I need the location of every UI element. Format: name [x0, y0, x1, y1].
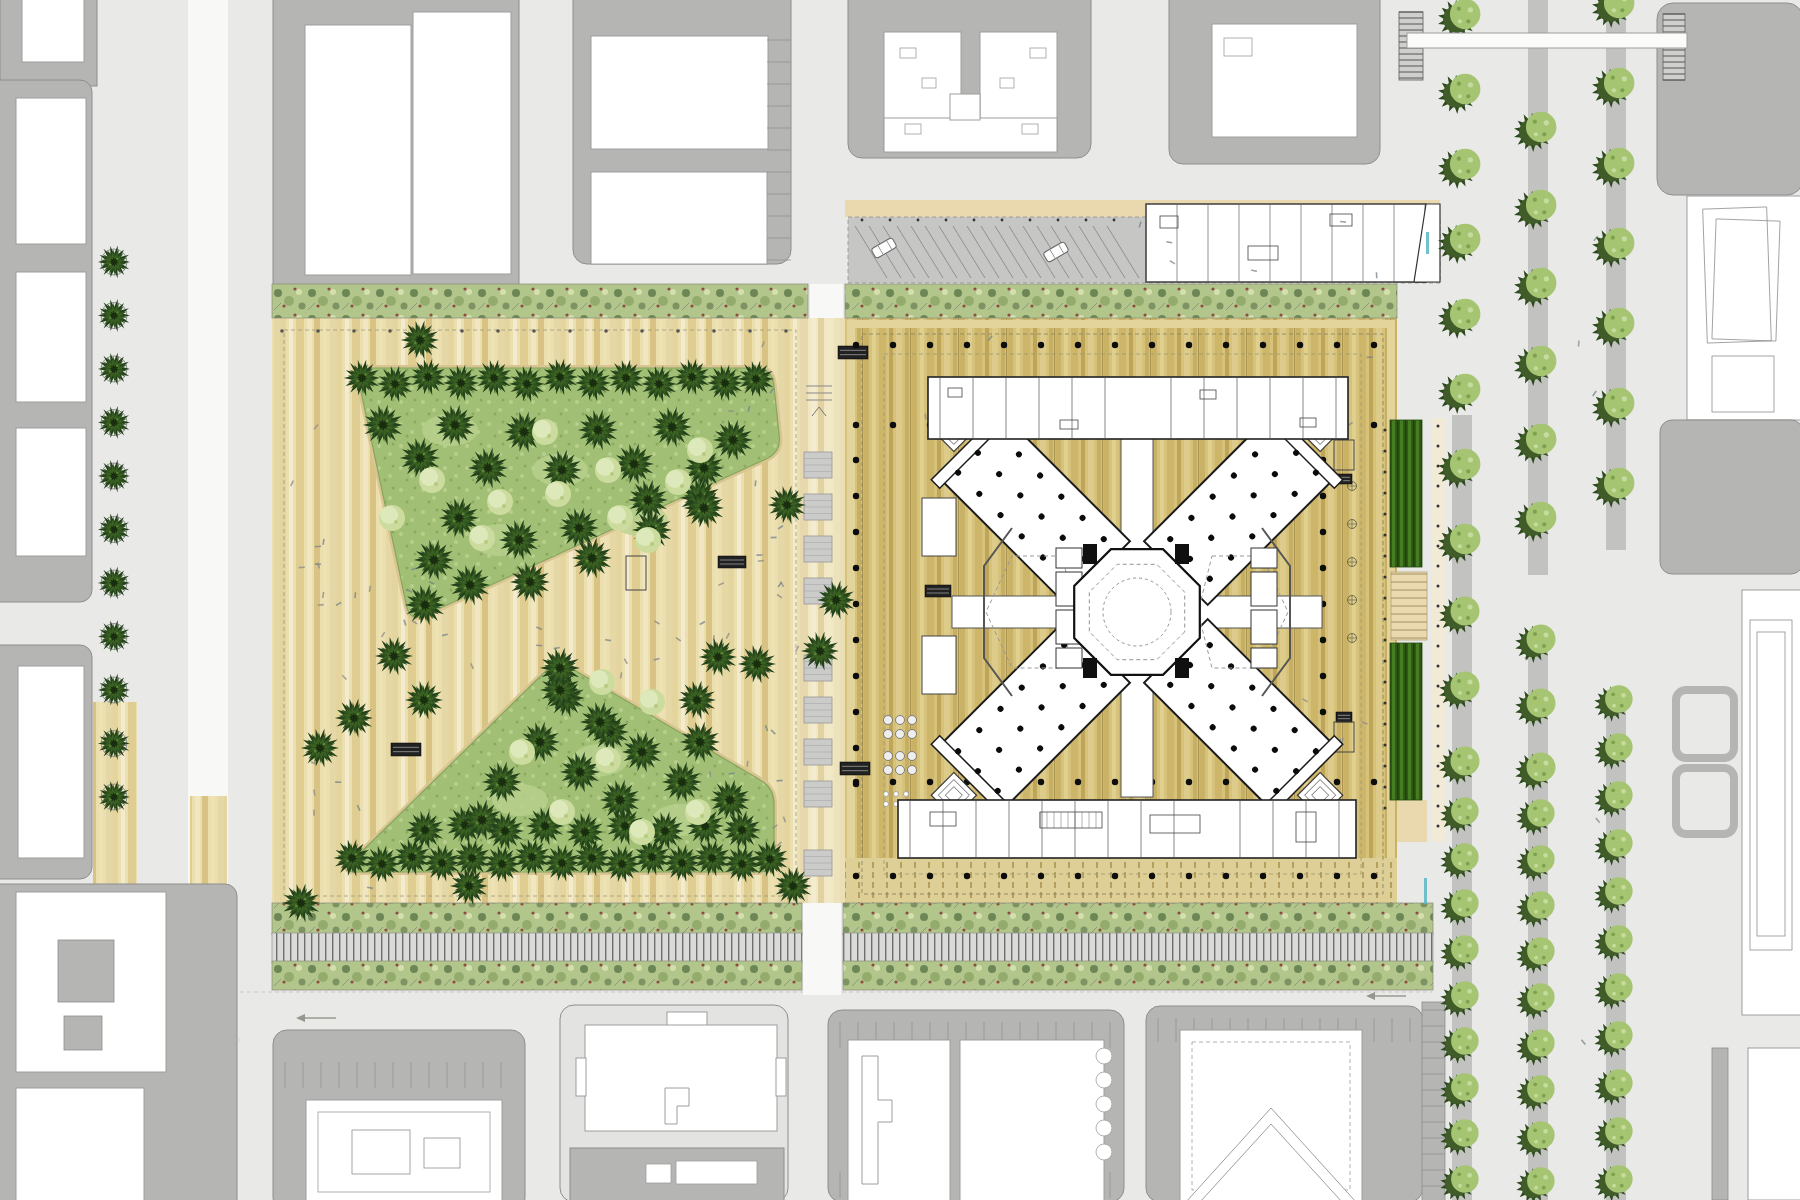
- city-blocks-item: [1000, 78, 1014, 88]
- south-hedge-west-upper: [272, 903, 802, 935]
- block-right-mid: [1660, 420, 1800, 574]
- east-planted-terrace-2: [1390, 643, 1422, 800]
- building-footprint: [591, 36, 768, 149]
- north-hedge-east: [845, 284, 1397, 318]
- city-blocks-item: [576, 1058, 586, 1096]
- building-footprint: [22, 0, 84, 62]
- survey-annotation: [1424, 878, 1427, 904]
- plaza-site-item: [845, 858, 1397, 904]
- bench: [391, 743, 421, 756]
- city-blocks-item: [1712, 1048, 1728, 1200]
- city-blocks-item: [16, 98, 86, 244]
- city-blocks-item: [18, 666, 84, 858]
- city-blocks-item: [64, 1016, 102, 1050]
- plaza-site-item: [853, 873, 1377, 879]
- x-shaped-museum: [906, 381, 1368, 843]
- south-hedge-west-lower: [272, 961, 802, 990]
- city-blocks-item: [922, 78, 936, 88]
- south-hedge-east-lower: [843, 961, 1433, 990]
- city-blocks-item: [16, 428, 86, 556]
- hedge-gap-walk: [810, 284, 843, 318]
- city-blocks-item: [900, 48, 916, 58]
- south-hedge-east-upper: [843, 903, 1433, 935]
- building-right-strip: [1687, 196, 1800, 420]
- city-blocks-item: [58, 940, 114, 1002]
- south-pergola-east: [843, 933, 1433, 963]
- cafe-tables: [884, 716, 917, 725]
- bench: [838, 346, 868, 359]
- south-gap-walk: [803, 903, 841, 995]
- city-blocks-item: [1030, 48, 1046, 58]
- building-footprint: [305, 25, 411, 275]
- building-footprint: [591, 172, 767, 264]
- plaza-site-item: [884, 752, 917, 761]
- bench: [925, 585, 951, 597]
- plaza-site-item: [884, 766, 917, 775]
- city-blocks-item: [905, 124, 921, 134]
- building-footprint: [413, 12, 511, 274]
- city-blocks-item: [676, 1161, 757, 1184]
- bench: [840, 762, 870, 775]
- pedestrian-bridge: [1407, 33, 1687, 48]
- building-bottom-right: [1748, 1048, 1800, 1200]
- parking-service-building: [1146, 204, 1426, 282]
- building-footprint: [1212, 24, 1357, 137]
- city-blocks-item: [646, 1164, 671, 1183]
- city-blocks-item: [306, 1100, 502, 1200]
- site-plan-screenshot: [0, 0, 1800, 1200]
- city-blocks-item: [1022, 124, 1038, 134]
- city-blocks-item: [16, 1088, 144, 1200]
- city-blocks-item: [585, 1025, 777, 1131]
- city-blocks-item: [848, 1040, 950, 1200]
- bench: [1336, 712, 1352, 722]
- south-pavilion: [898, 800, 1356, 858]
- city-blocks-item: [16, 272, 86, 402]
- plaza-kiosk: [922, 636, 956, 694]
- north-pavilion: [928, 377, 1348, 439]
- plaza-site-item: [884, 730, 917, 739]
- east-planted-terrace-1: [1390, 420, 1422, 567]
- plaza-site-item: [884, 792, 909, 797]
- plaza-site-item: [1437, 425, 1440, 828]
- south-pergola-west: [272, 933, 802, 963]
- column-dots: [853, 342, 1377, 348]
- plaza-kiosk: [922, 498, 956, 556]
- city-blocks-item: [776, 1058, 786, 1096]
- north-hedge-west: [272, 284, 808, 318]
- bench: [718, 556, 746, 568]
- city-blocks-item: [960, 1040, 1104, 1200]
- city-blocks-item: [884, 118, 1057, 152]
- building-right-tall: [1742, 590, 1800, 1015]
- survey-annotation: [1426, 232, 1429, 254]
- city-blocks-item: [950, 94, 980, 120]
- site-plan-drawing: [0, 0, 1800, 1200]
- east-sidewalk: [1432, 418, 1446, 842]
